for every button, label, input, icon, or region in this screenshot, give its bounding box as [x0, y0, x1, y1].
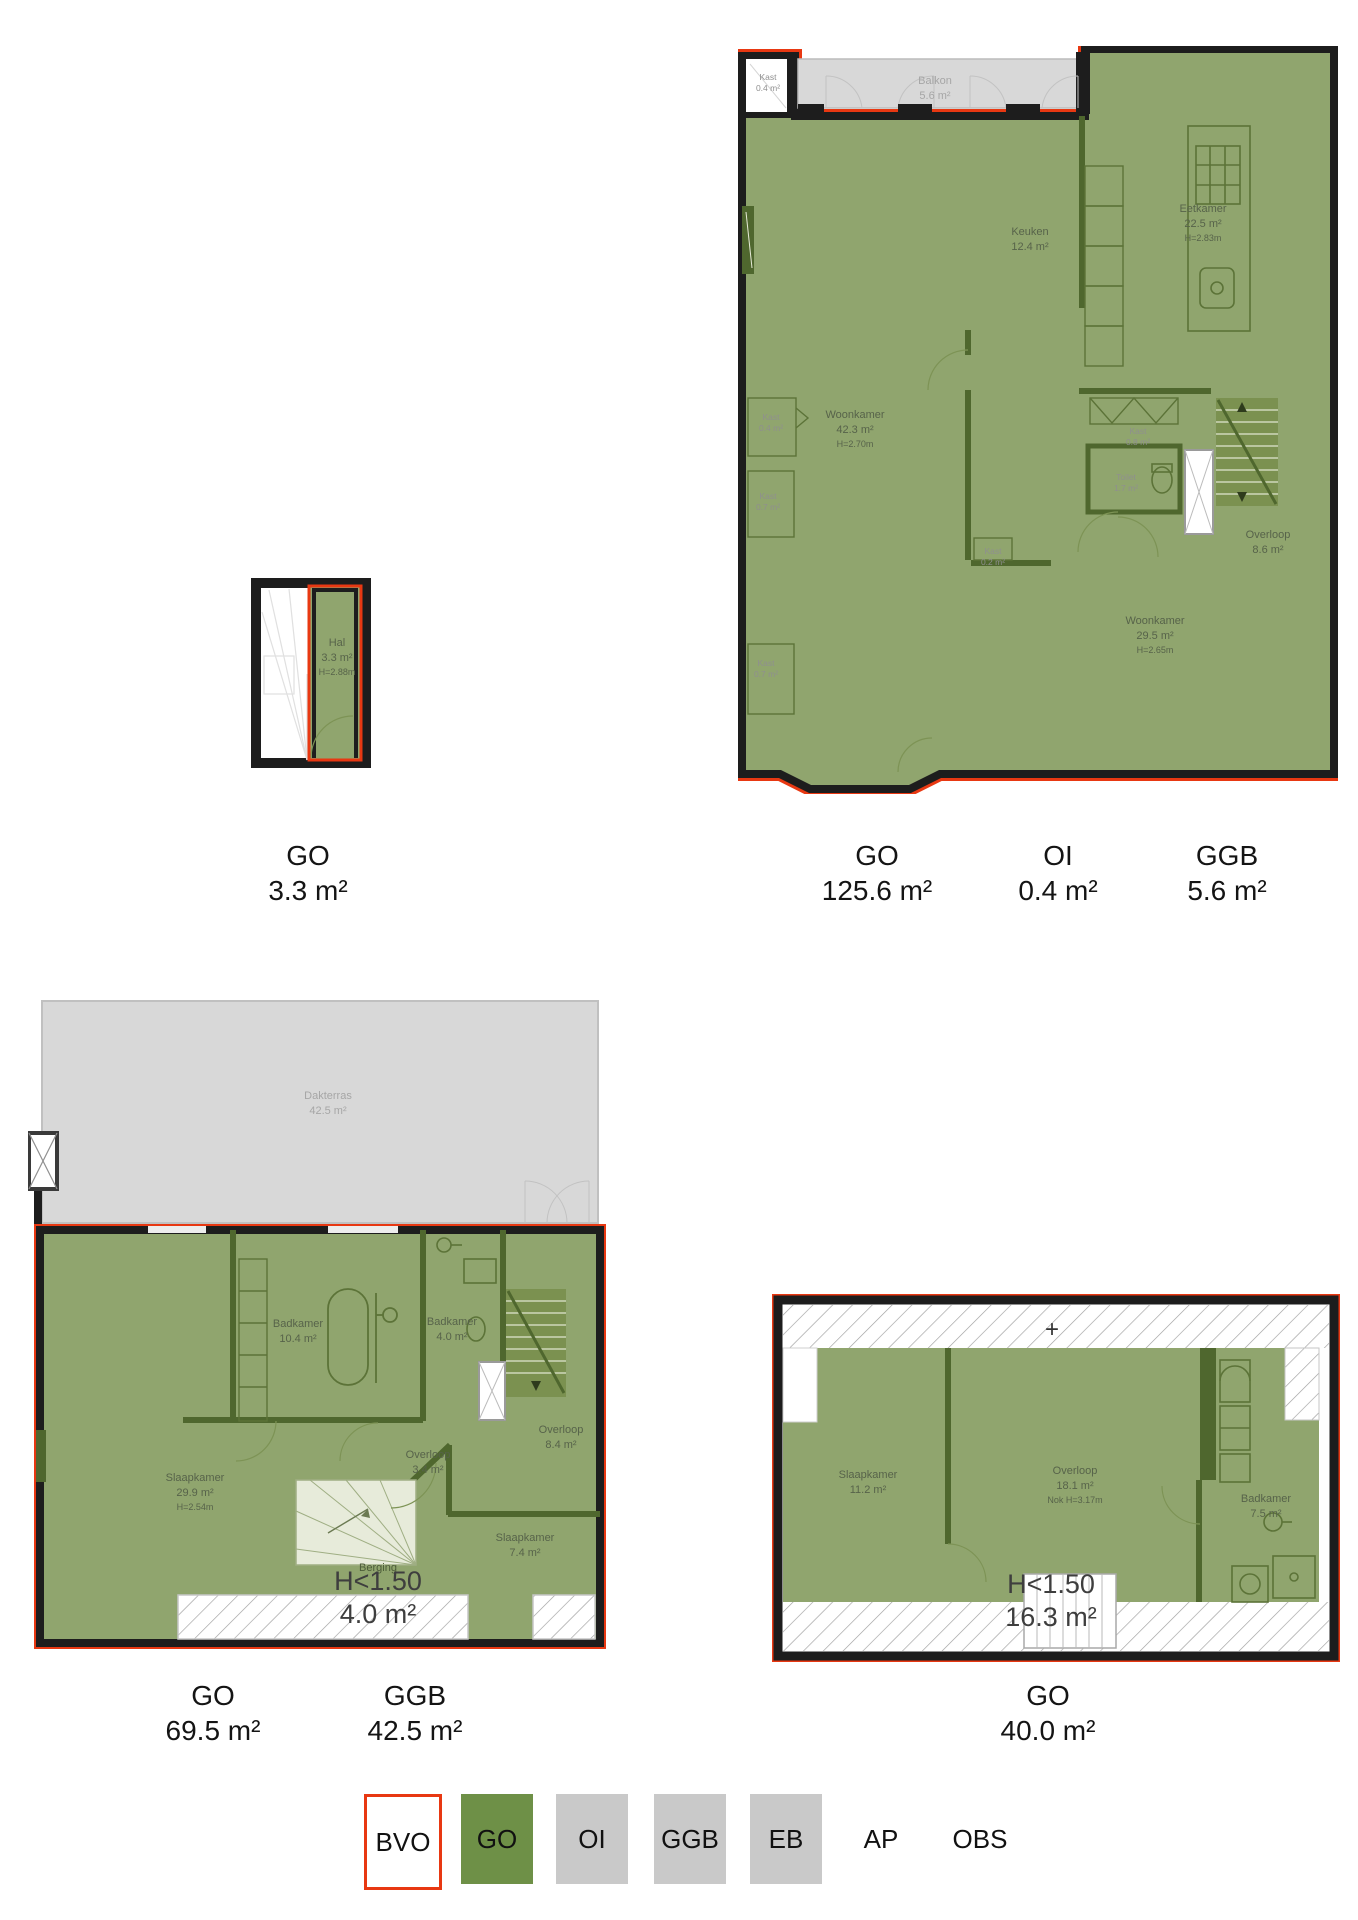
legend-go: GO [461, 1794, 533, 1884]
winder-stairs-icon [296, 1480, 416, 1565]
room-label-badkamer-klein: Badkamer4.0 m² [427, 1315, 477, 1345]
room-label-slaapkamer: Slaapkamer11.2 m² [839, 1468, 898, 1498]
room-label-kast-midden: Kast0.2 m² [981, 546, 1005, 568]
legend-ap: AP [845, 1794, 917, 1884]
legend-obs: OBS [938, 1794, 1022, 1884]
legend-oi: OI [556, 1794, 628, 1884]
north-plus-marker: + [1045, 1316, 1059, 1344]
room-label-slaapkamer-klein: Slaapkamer7.4 m² [496, 1531, 555, 1561]
room-label-overloop-groot: Overloop8.4 m² [539, 1423, 584, 1453]
room-label-overloop: Overloop8.6 m² [1246, 528, 1291, 558]
legend-eb: EB [750, 1794, 822, 1884]
room-label-keuken: Keuken12.4 m² [1011, 225, 1048, 255]
nen2580-measurement-drawing: Hal 3.3 m² H=2.88m [0, 0, 1358, 1920]
floorplan-woonverdieping: Kast0.4 m² Balkon5.6 m² Keuken12.4 m² Ee… [738, 46, 1338, 794]
low-ceiling-label: H<1.50 16.3 m² [1005, 1568, 1097, 1634]
staircase-icon [506, 1289, 566, 1397]
low-ceiling-label: H<1.50 4.0 m² [334, 1565, 422, 1631]
wall-seg [746, 112, 791, 118]
plan2-go-total: GO125.6 m² [822, 838, 933, 908]
window-seg [328, 1226, 398, 1233]
low-ceiling-hatch [178, 1595, 468, 1639]
room-label-slaapkamer-groot: Slaapkamer29.9 m² H=2.54m [166, 1471, 225, 1513]
room-label-toilet: Toilet1.7 m² [1114, 472, 1138, 494]
room-label-dakterras: Dakterras42.5 m² [304, 1089, 352, 1119]
room-label-kast-l1: Kast0.4 m² [759, 412, 783, 434]
room-label-kast-oi: Kast0.4 m² [756, 72, 780, 94]
wall-left [312, 588, 316, 758]
low-ceiling-hatch [533, 1595, 595, 1639]
room-label-badkamer: Badkamer7.5 m² [1241, 1492, 1291, 1522]
wall-top [316, 588, 354, 592]
room-label-balkon: Balkon5.6 m² [918, 74, 952, 104]
room-label-kast-l2: Kast0.7 m² [756, 491, 780, 513]
wall-seg [1006, 104, 1040, 112]
room-label-hal: Hal 3.3 m² H=2.88m [319, 636, 356, 678]
plan2-oi-total: OI0.4 m² [1018, 838, 1097, 908]
room-label-eetkamer: Eetkamer22.5 m² H=2.83m [1179, 202, 1226, 244]
floorplan-begane-grond: Hal 3.3 m² H=2.88m [249, 576, 373, 770]
floorplan-slaapverdieping: Dakterras42.5 m² Badkamer10.4 m² Badkame… [28, 993, 613, 1653]
wall-seg [798, 104, 824, 112]
wall-seg [898, 104, 932, 112]
window-seg [148, 1226, 206, 1233]
plan1-go-total: GO3.3 m² [268, 838, 347, 908]
legend-bvo: BVO [364, 1794, 442, 1890]
wall-seg [787, 59, 793, 117]
shaft-icon [1185, 450, 1213, 534]
room-label-overloop: Overloop18.1 m² Nok H=3.17m [1047, 1464, 1102, 1506]
floorplan-zolder: + Slaapkamer11.2 m² Overloop18.1 m² Nok … [768, 1290, 1344, 1666]
room-label-woonkamer-achter: Woonkamer29.5 m² H=2.65m [1125, 614, 1184, 656]
room-label-woonkamer-voor: Woonkamer42.3 m² H=2.70m [825, 408, 884, 450]
plan3-ggb-total: GGB42.5 m² [368, 1678, 463, 1748]
low-ceiling-hatch-right [1285, 1348, 1319, 1420]
staircase-icon [1216, 398, 1278, 506]
plan4-go-total: GO40.0 m² [1001, 1678, 1096, 1748]
room-label-badkamer-groot: Badkamer10.4 m² [273, 1317, 323, 1347]
room-label-kast-08: Kast0.8 m² [1126, 426, 1150, 448]
room-label-overloop-klein: Overloop3.4 m² [406, 1448, 451, 1478]
room-label-kast-l3: Kast0.7 m² [754, 658, 778, 680]
plan2-ggb-total: GGB5.6 m² [1187, 838, 1266, 908]
window-icon [29, 1133, 57, 1189]
legend-ggb: GGB [654, 1794, 726, 1884]
shaft-icon [479, 1362, 505, 1420]
plan3-go-total: GO69.5 m² [166, 1678, 261, 1748]
window-niche [783, 1348, 817, 1422]
